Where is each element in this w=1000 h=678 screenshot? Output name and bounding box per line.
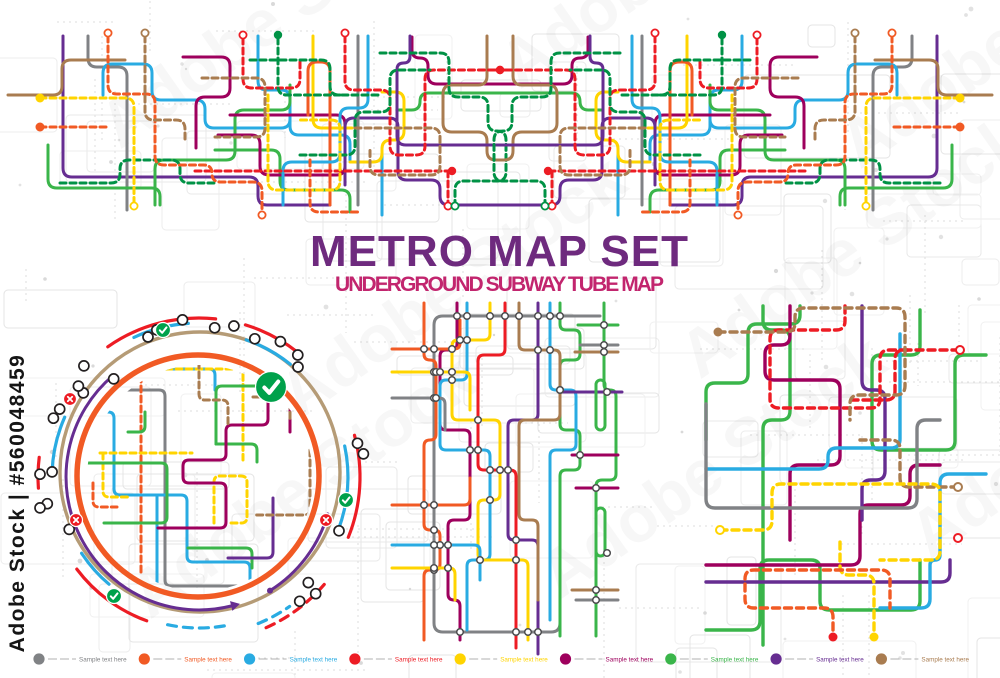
svg-text:Sample text here: Sample text here (606, 656, 654, 663)
svg-text:Sample text here: Sample text here (500, 656, 548, 663)
svg-text:Sample text here: Sample text here (711, 656, 759, 663)
svg-text:METRO MAP SET: METRO MAP SET (310, 227, 690, 276)
svg-text:Sample text here: Sample text here (816, 656, 864, 663)
svg-text:UNDERGROUND SUBWAY TUBE MAP: UNDERGROUND SUBWAY TUBE MAP (335, 273, 665, 296)
svg-text:Sample text here: Sample text here (184, 656, 232, 663)
svg-text:Adobe Stock | #560048459: Adobe Stock | #560048459 (6, 354, 29, 653)
svg-text:Sample text here: Sample text here (290, 656, 338, 663)
svg-text:Sample text here: Sample text here (921, 656, 969, 663)
svg-text:Sample text here: Sample text here (395, 656, 443, 663)
svg-text:Sample text here: Sample text here (79, 656, 127, 663)
